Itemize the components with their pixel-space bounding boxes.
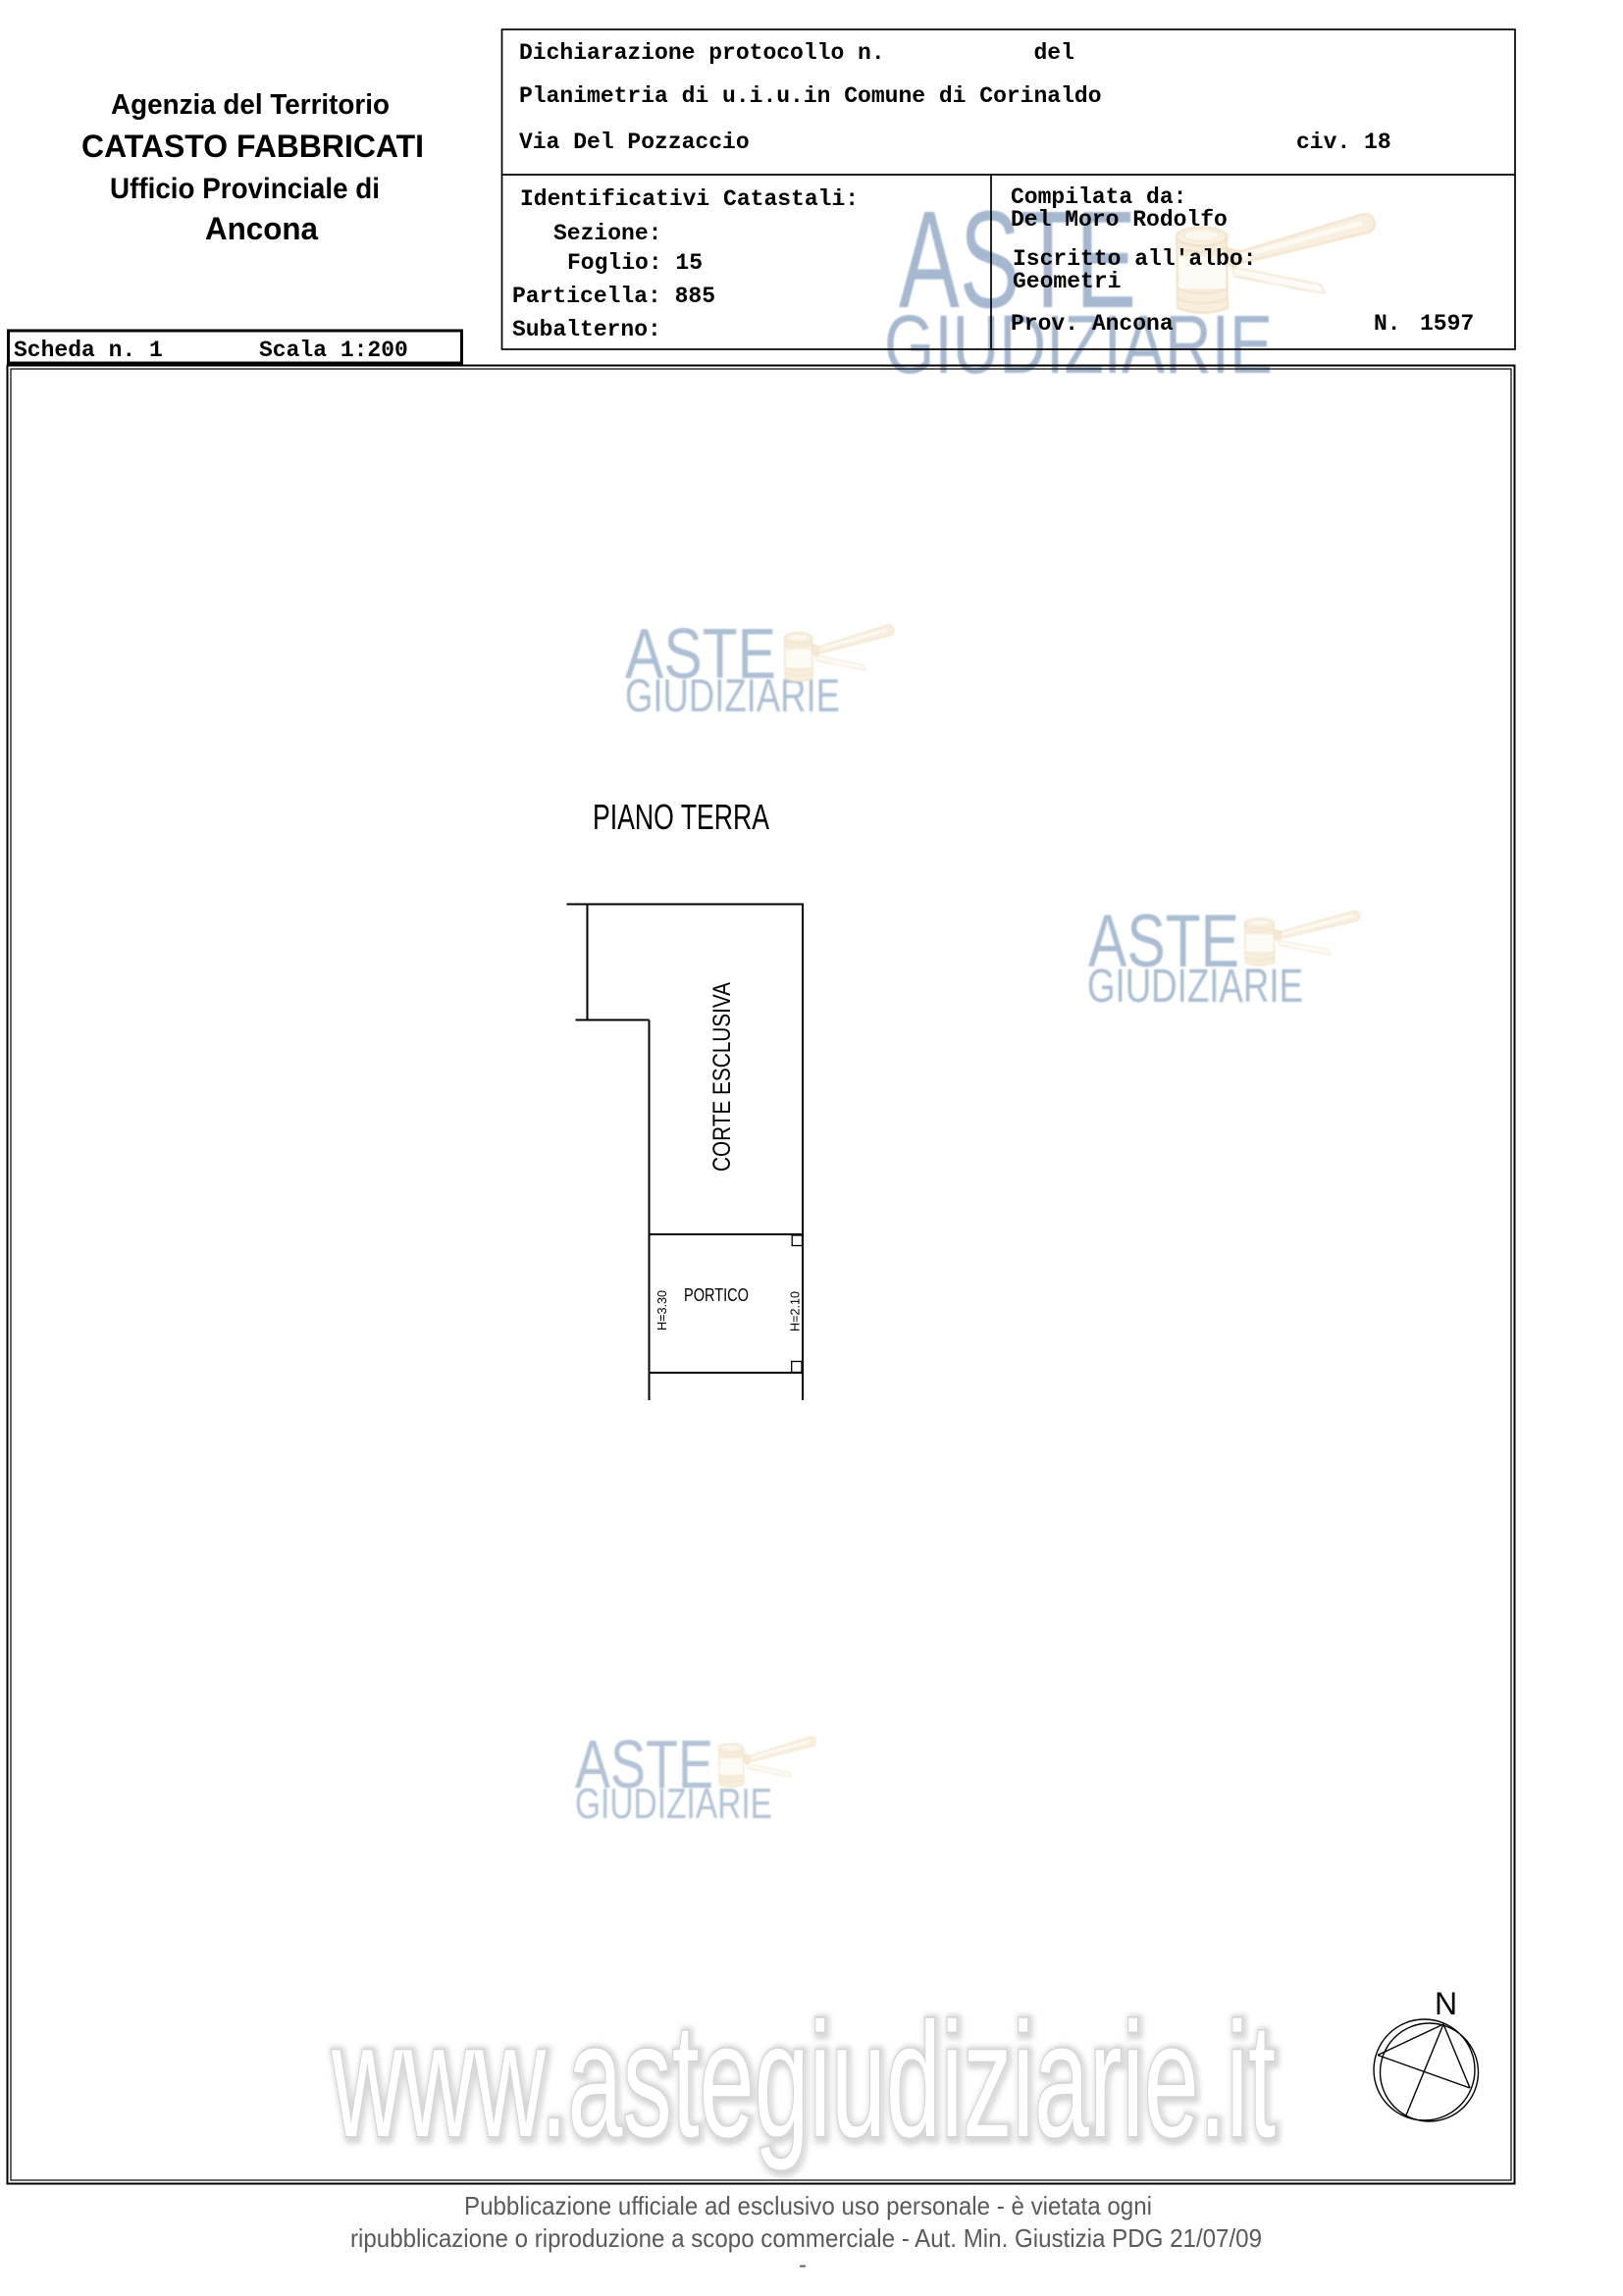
svg-text:Scala 1:200: Scala 1:200 [259, 338, 408, 363]
svg-text:Ancona: Ancona [205, 211, 318, 246]
svg-text:Identificativi Catastali:: Identificativi Catastali: [520, 186, 859, 212]
svg-text:Sezione:: Sezione: [553, 221, 661, 246]
svg-text:Via Del Pozzaccio: Via Del Pozzaccio [519, 130, 750, 155]
svg-text:Prov. Ancona: Prov. Ancona [1011, 311, 1174, 337]
svg-text:Planimetria di u.i.u.in Comune: Planimetria di u.i.u.in Comune di Corina… [519, 83, 1102, 109]
svg-text:CATASTO FABBRICATI: CATASTO FABBRICATI [81, 129, 424, 164]
svg-text:Del Moro Rodolfo: Del Moro Rodolfo [1011, 207, 1228, 233]
svg-text:GIUDIZIARIE: GIUDIZIARIE [575, 1780, 772, 1828]
svg-text:Ufficio Provinciale di: Ufficio Provinciale di [110, 173, 380, 205]
svg-text:Foglio: 15: Foglio: 15 [567, 250, 703, 276]
svg-text:1597: 1597 [1420, 311, 1474, 337]
svg-text:Dichiarazione protocollo n.: Dichiarazione protocollo n. del [519, 40, 1074, 66]
svg-text:Geometri: Geometri [1013, 269, 1121, 294]
svg-text:Particella: 885: Particella: 885 [512, 284, 715, 309]
svg-text:Scheda n. 1: Scheda n. 1 [14, 338, 163, 363]
svg-text:Subalterno:: Subalterno: [512, 317, 661, 342]
svg-text:Agenzia del Territorio: Agenzia del Territorio [111, 89, 390, 121]
svg-text:PIANO TERRA: PIANO TERRA [593, 797, 769, 837]
svg-text:-: - [799, 2252, 807, 2278]
svg-text:GIUDIZIARIE: GIUDIZIARIE [1087, 961, 1303, 1013]
svg-text:H=2.10: H=2.10 [788, 1291, 803, 1331]
svg-text:Pubblicazione ufficiale ad esc: Pubblicazione ufficiale ad esclusivo uso… [464, 2191, 1152, 2220]
svg-text:ripubblicazione o riproduzione: ripubblicazione o riproduzione a scopo c… [350, 2223, 1262, 2253]
svg-text:N.: N. [1374, 311, 1401, 337]
svg-text:civ. 18: civ. 18 [1296, 130, 1391, 155]
svg-text:N: N [1435, 1986, 1457, 2021]
svg-text:www.astegiudiziarie.it: www.astegiudiziarie.it [331, 1990, 1276, 2171]
svg-text:PORTICO: PORTICO [684, 1285, 749, 1305]
svg-text:CORTE ESCLUSIVA: CORTE ESCLUSIVA [708, 982, 736, 1172]
svg-text:H=3.30: H=3.30 [654, 1290, 669, 1331]
